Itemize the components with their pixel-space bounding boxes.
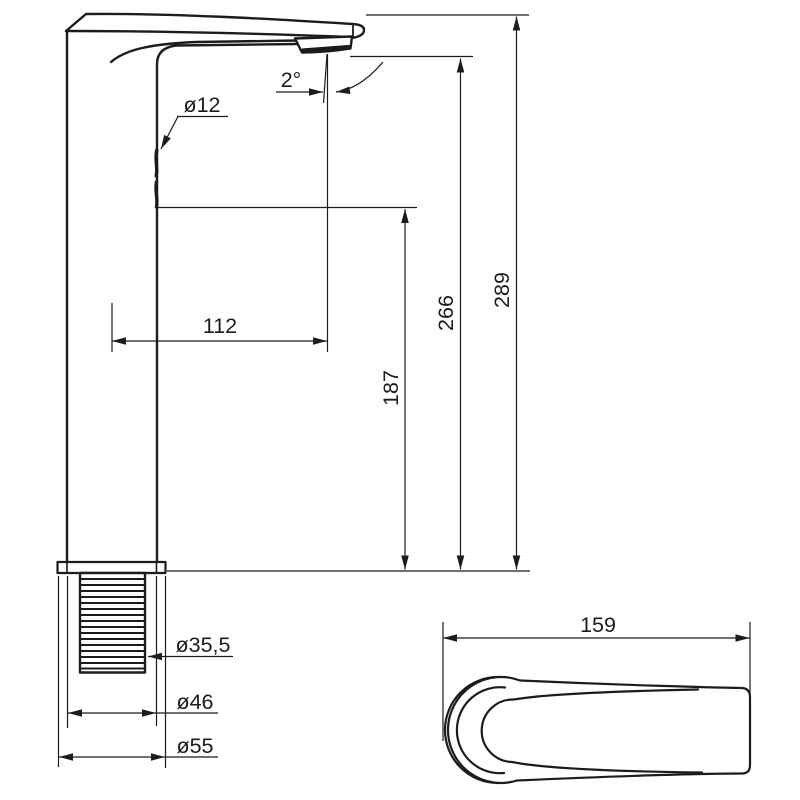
- base-flange: [58, 562, 166, 573]
- body-right-edge: [157, 44, 297, 562]
- label-pipe-diameter: ø12: [183, 93, 220, 117]
- dimension-annotations: [59, 15, 751, 768]
- label-body-diameter: ø46: [176, 690, 213, 714]
- label-spout-underside-height: 187: [379, 370, 403, 406]
- dimension-labels: ø12 2° 112 187 266 289 ø35,5 ø46 ø55 159: [176, 68, 616, 758]
- label-base-diameter: ø55: [176, 734, 213, 758]
- handle-top-view: [445, 677, 750, 783]
- water-stream-tilted-line: [324, 54, 328, 103]
- faucet-dimension-drawing: ø12 2° 112 187 266 289 ø35,5 ø46 ø55 159: [0, 0, 800, 800]
- arc-spout-angle: [336, 62, 383, 92]
- label-shank-diameter: ø35,5: [176, 633, 231, 657]
- label-spout-angle: 2°: [281, 68, 302, 92]
- lever-top-edge: [66, 14, 352, 31]
- label-outlet-height: 266: [434, 295, 458, 331]
- leader-pipe-diameter: [161, 117, 178, 150]
- technical-drawing-canvas: ø12 2° 112 187 266 289 ø35,5 ø46 ø55 159: [0, 0, 800, 800]
- label-handle-length: 159: [580, 613, 616, 637]
- label-total-height: 289: [490, 272, 514, 308]
- lever-bottom-edge: [66, 31, 350, 37]
- label-spout-reach: 112: [203, 314, 237, 338]
